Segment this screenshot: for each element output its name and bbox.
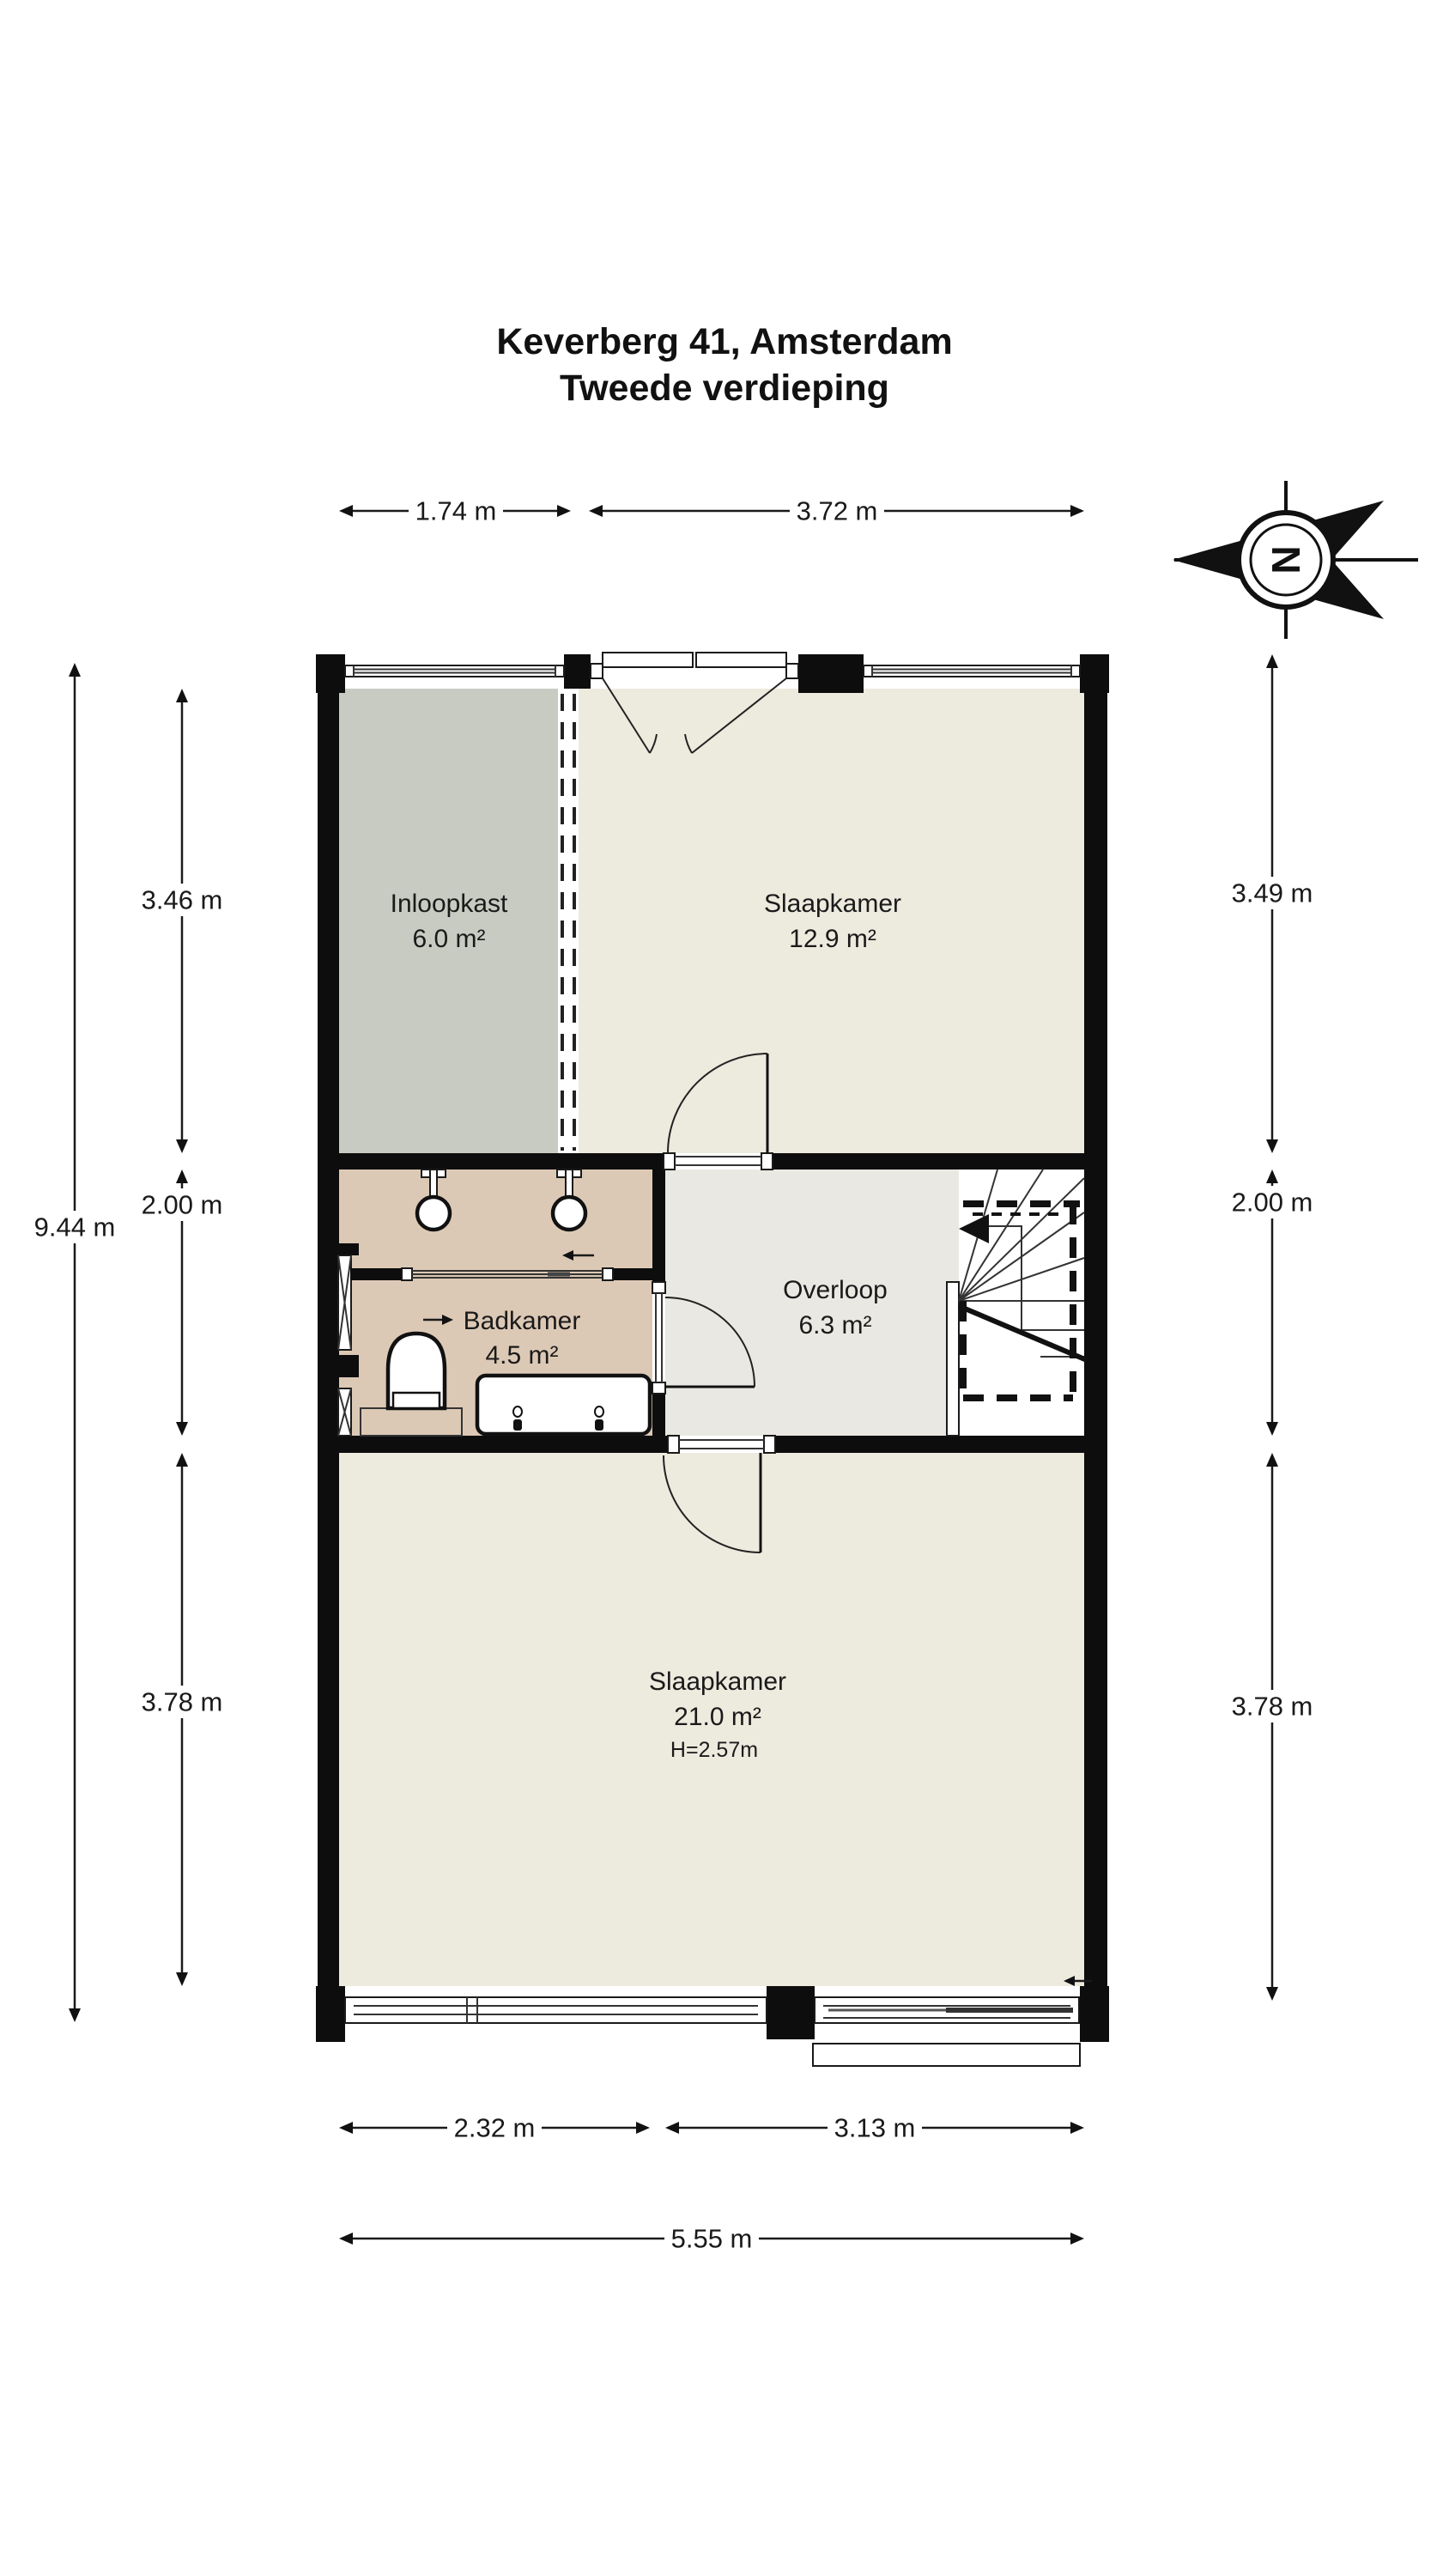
pier-bottom-mid (767, 1986, 815, 2039)
dim-right-3: 3.78 m (1232, 1692, 1313, 1722)
pier-top-chimney (798, 654, 864, 693)
room-area-overloop: 6.3 m² (798, 1311, 871, 1340)
room-name-slaapkamer1: Slaapkamer (764, 890, 901, 918)
wall-right (1084, 654, 1107, 2028)
dim-right-2: 2.00 m (1232, 1188, 1313, 1218)
dim-left-3: 3.78 m (142, 1687, 223, 1717)
wall-stub-1 (337, 1243, 359, 1255)
toilet-icon (388, 1334, 445, 1408)
pier-top-right (1080, 654, 1109, 693)
pier-top-mid (564, 654, 591, 689)
washbasin-icon (477, 1376, 650, 1434)
stair-stringer (947, 1282, 959, 1436)
room-name-overloop: Overloop (783, 1276, 888, 1304)
dimension-right: 3.49 m 2.00 m 3.78 m (1222, 654, 1323, 2001)
room-area-slaapkamer2: 21.0 m² (674, 1703, 761, 1731)
title-line-2: Tweede verdieping (560, 368, 889, 409)
window-bottom-left (345, 1997, 767, 2023)
wall-badkamer-hall-lower (652, 1394, 665, 1436)
pier-bottom-right (1080, 1986, 1109, 2042)
title-line-1: Keverberg 41, Amsterdam (496, 321, 952, 362)
compass-north-icon: N (1173, 481, 1418, 639)
dimension-left: 3.46 m 2.00 m 3.78 m (131, 689, 233, 1986)
dimension-left-total: 9.44 m (24, 663, 125, 2022)
page-title: Keverberg 41, Amsterdam Tweede verdiepin… (496, 321, 952, 409)
wall-mid-lower-right (775, 1436, 1084, 1453)
compass-letter: N (1264, 545, 1308, 574)
room-height-slaapkamer2: H=2.57m (670, 1738, 758, 1762)
room-area-slaapkamer1: 12.9 m² (789, 925, 876, 953)
pier-top-left (316, 654, 345, 693)
dim-bottom-1: 2.32 m (454, 2113, 536, 2143)
duct-shaft-icon (338, 1255, 351, 1436)
room-floors (339, 689, 1084, 1986)
dim-bottom-total: 5.55 m (671, 2224, 753, 2254)
wall-mid-upper-right (773, 1153, 1084, 1170)
closet-dashed-wall (558, 689, 579, 1153)
window-bottom-right (815, 1997, 1079, 2023)
dimension-bottom: 2.32 m 3.13 m 5.55 m (339, 2111, 1084, 2255)
room-name-inloopkast: Inloopkast (391, 890, 508, 918)
room-area-badkamer: 4.5 m² (485, 1341, 558, 1370)
toilet-platform (361, 1408, 462, 1436)
wall-mid-upper-left (339, 1153, 664, 1170)
balcony-slab (813, 2044, 1080, 2066)
dimension-top: 1.74 m 3.72 m (339, 495, 1084, 527)
dim-top-2: 3.72 m (797, 496, 878, 526)
pier-bottom-left (316, 1986, 345, 2042)
wall-mid-lower-left (339, 1436, 668, 1453)
dim-top-1: 1.74 m (415, 496, 497, 526)
wall-left (318, 654, 339, 2028)
room-area-inloopkast: 6.0 m² (412, 925, 485, 953)
window-top-right (864, 665, 1080, 677)
dim-right-1: 3.49 m (1232, 878, 1313, 908)
room-inloopkast-floor (339, 689, 558, 1153)
dim-bottom-2: 3.13 m (834, 2113, 916, 2143)
wall-badkamer-hall-upper (652, 1170, 665, 1282)
wall-stub-2 (337, 1355, 359, 1377)
floorplan-page: Keverberg 41, Amsterdam Tweede verdiepin… (0, 0, 1449, 2576)
dim-left-total: 9.44 m (34, 1212, 116, 1242)
dim-left-2: 2.00 m (142, 1190, 223, 1220)
room-name-badkamer: Badkamer (464, 1307, 581, 1335)
window-top-left (345, 665, 564, 677)
room-name-slaapkamer2: Slaapkamer (649, 1668, 786, 1696)
dim-left-1: 3.46 m (142, 885, 223, 915)
room-slaapkamer1-floor (579, 689, 1084, 1153)
shower-glass-partition (350, 1268, 652, 1280)
floor-plan-svg: Keverberg 41, Amsterdam Tweede verdiepin… (0, 0, 1449, 2576)
